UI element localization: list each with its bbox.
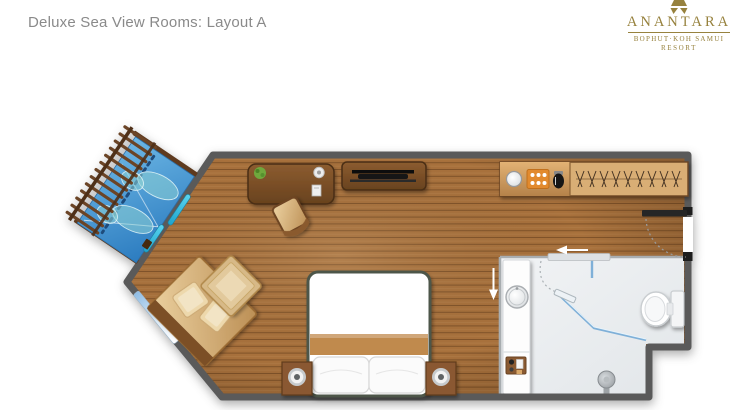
cup-center <box>317 171 321 175</box>
bedside-table-right <box>426 362 456 395</box>
floorplan-page: Deluxe Sea View Rooms: Layout A ANANTARA… <box>0 0 755 410</box>
basin <box>506 286 528 308</box>
bed-pillows <box>313 357 425 393</box>
bathroom-sliding-door <box>548 254 610 261</box>
tv-stand <box>350 180 416 183</box>
bedside-table-left <box>282 362 312 395</box>
tv-console <box>342 162 426 190</box>
entry-door-leaf <box>642 210 687 217</box>
television <box>352 170 414 174</box>
minibar-sink <box>507 172 522 187</box>
floor-plan <box>0 0 755 410</box>
plant-leaf <box>261 173 265 177</box>
bathroom-area <box>489 246 684 396</box>
tv-base <box>358 174 408 179</box>
plant-leaf <box>256 169 260 173</box>
potted-plant <box>254 167 266 179</box>
kettle <box>553 171 564 189</box>
toilet <box>641 291 684 327</box>
amenity-tray <box>506 357 526 374</box>
coffee-tray <box>527 170 549 189</box>
minibar-wardrobe-unit <box>500 162 688 196</box>
double-bed <box>308 272 430 396</box>
notepad <box>312 185 321 196</box>
